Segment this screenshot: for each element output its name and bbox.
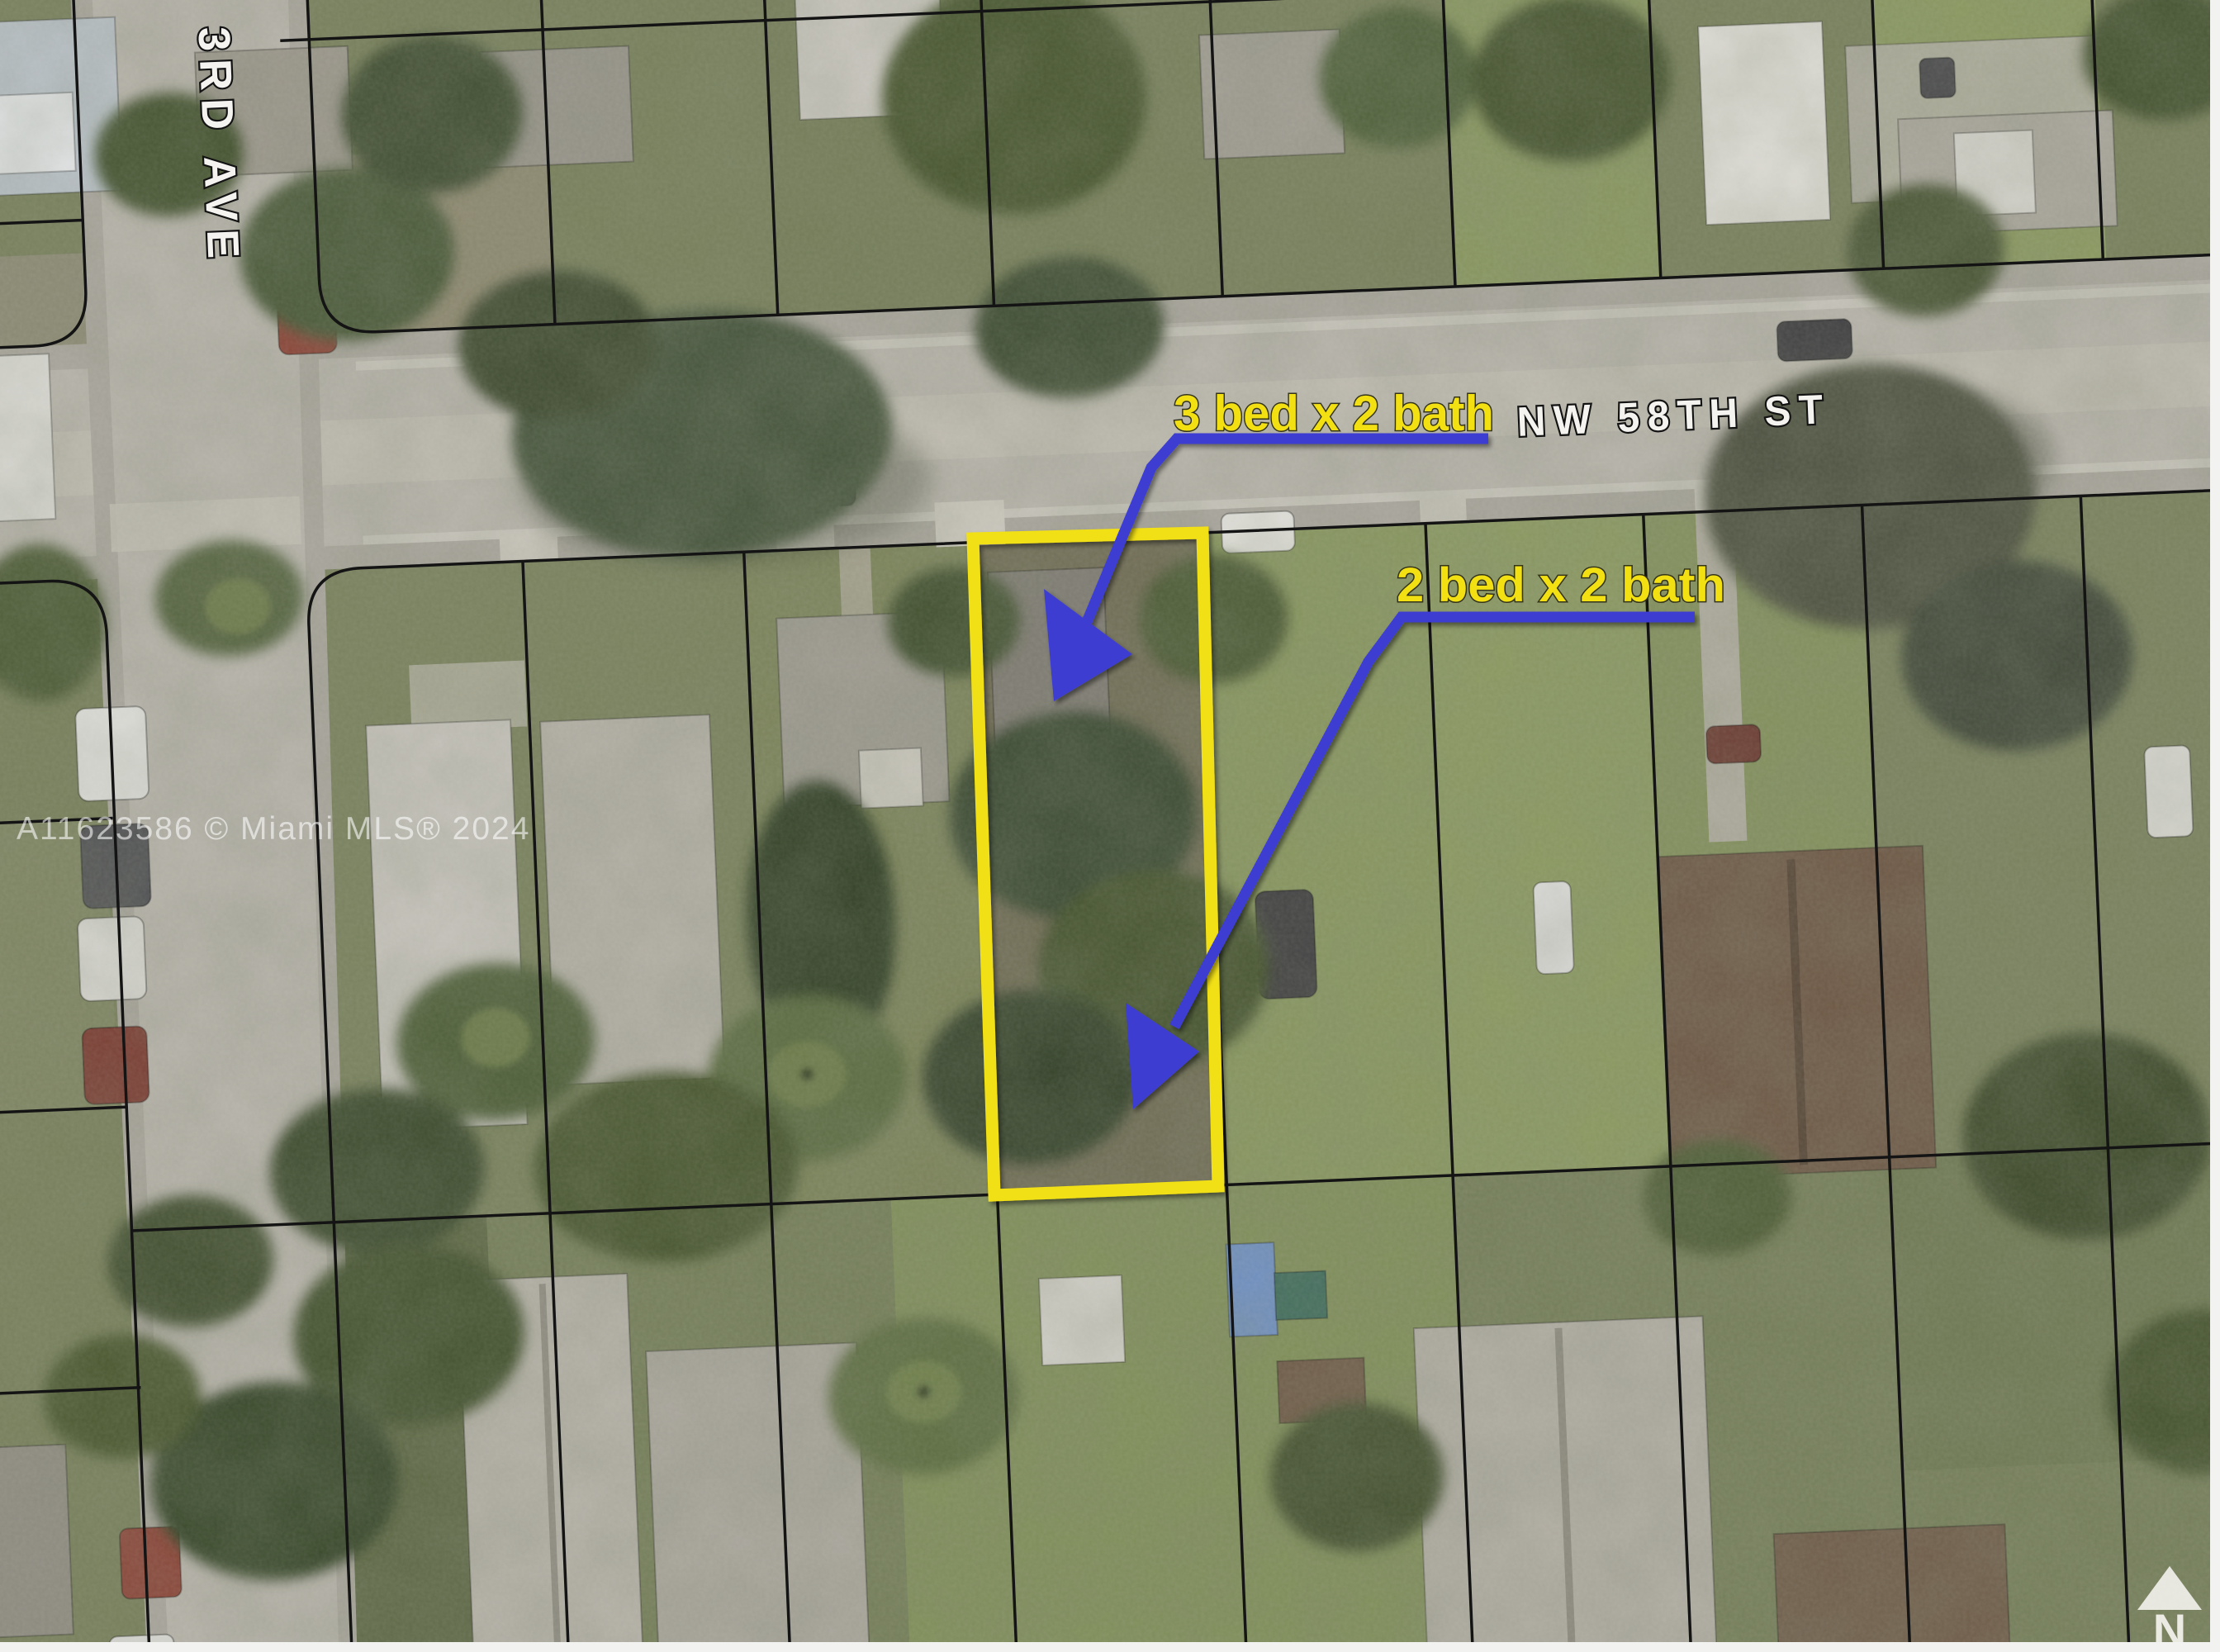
photo-border-right — [2210, 0, 2220, 1652]
annotation-2bed: 2 bed x 2 bath — [1397, 558, 1725, 612]
mls-watermark: A11623586 © Miami MLS® 2024 — [17, 811, 530, 847]
street-label-3rd-ave: 3RD AVE — [189, 26, 249, 267]
aerial-parcel-map: NW 58TH ST 3RD AVE A11623586 © Miami MLS… — [0, 0, 2220, 1652]
annotation-3bed: 3 bed x 2 bath — [1174, 386, 1494, 441]
photo-border-bottom — [0, 1642, 2220, 1652]
